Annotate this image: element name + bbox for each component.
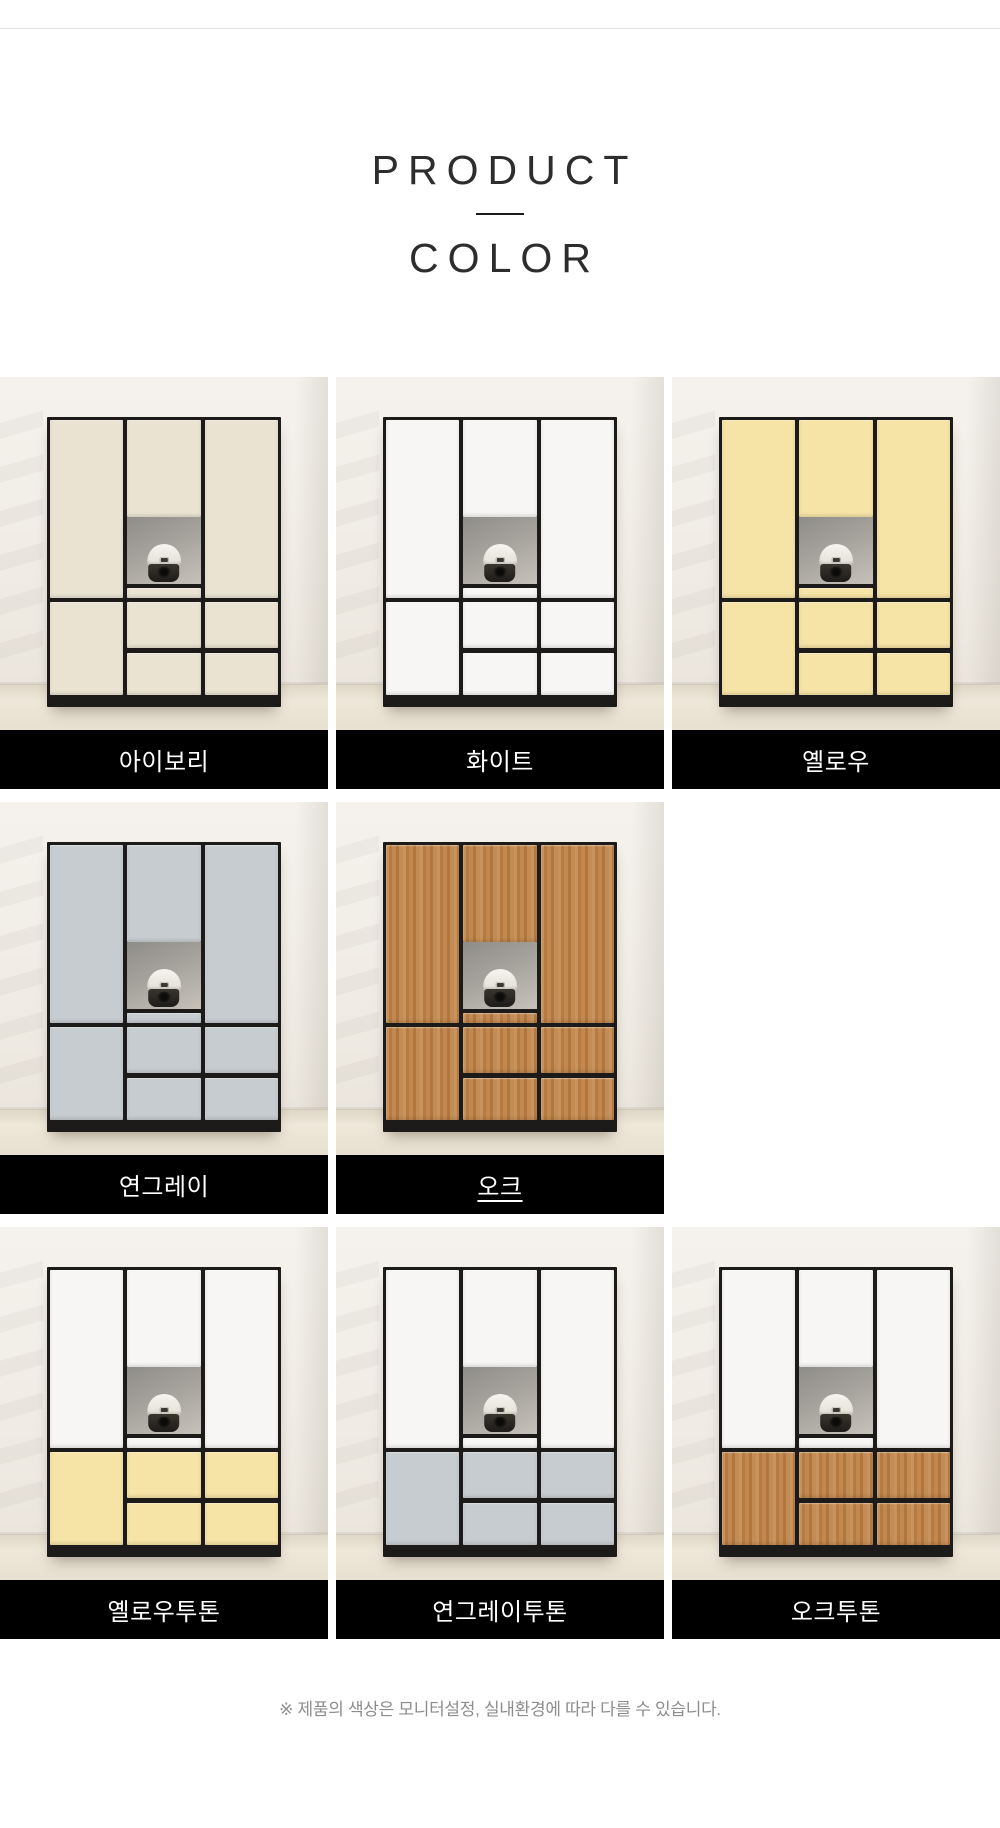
thin-drawer-panel (127, 1438, 200, 1448)
drawer-panel (205, 602, 278, 648)
product-photo (672, 377, 1000, 730)
wardrobe-illustration (383, 1267, 617, 1558)
drawer-panel (541, 1503, 614, 1545)
color-label: 오크투톤 (791, 1592, 881, 1627)
color-label: 연그레이 (119, 1167, 209, 1202)
wall-corner (967, 377, 1000, 688)
color-label-bar: 옐로우투톤 (0, 1580, 328, 1639)
door-panel (127, 1270, 200, 1367)
product-photo (0, 1227, 328, 1580)
color-swatch-oak-twotone: 오크투톤 (672, 1227, 1000, 1639)
rice-cooker-latch (160, 557, 169, 563)
rice-cooker-latch (496, 982, 505, 988)
door-panel (386, 602, 459, 695)
color-label: 오크 (477, 1167, 522, 1202)
product-photo (336, 1227, 664, 1580)
door-panel (877, 420, 950, 598)
rice-cooker-body (485, 989, 516, 1008)
wall-shadow (336, 836, 379, 1100)
rice-cooker (483, 969, 517, 1008)
rice-cooker (819, 1394, 853, 1433)
door-panel (205, 845, 278, 1023)
door-panel (50, 1270, 123, 1448)
rice-cooker-lid (483, 969, 517, 990)
wardrobe-illustration (719, 417, 953, 708)
door-panel (722, 420, 795, 598)
door-panel (463, 845, 536, 942)
color-label-bar: 아이보리 (0, 730, 328, 789)
product-photo (336, 802, 664, 1155)
wall-shadow (0, 1261, 43, 1525)
wall-shadow (0, 836, 43, 1100)
door-panel (50, 845, 123, 1023)
title-product: PRODUCT (0, 149, 1000, 192)
drawer-panel (205, 1452, 278, 1498)
open-niche (463, 517, 536, 584)
rice-cooker (147, 544, 181, 583)
door-panel (799, 420, 872, 517)
rice-cooker-body (821, 1414, 852, 1433)
door-panel (877, 1270, 950, 1448)
rice-cooker-latch (160, 1407, 169, 1413)
open-niche (463, 942, 536, 1009)
open-niche (463, 1367, 536, 1434)
door-panel (722, 1452, 795, 1545)
rice-cooker-window (157, 567, 171, 578)
rice-cooker-body (149, 564, 180, 583)
rice-cooker-latch (832, 557, 841, 563)
wardrobe-illustration (47, 1267, 281, 1558)
door-panel (205, 1270, 278, 1448)
thin-drawer-panel (127, 1013, 200, 1023)
rice-cooker-window (493, 567, 507, 578)
wardrobe-illustration (719, 1267, 953, 1558)
drawer-panel (799, 1503, 872, 1545)
door-panel (386, 845, 459, 1023)
drawer-panel (463, 1078, 536, 1120)
door-panel (463, 1270, 536, 1367)
drawer-panel (463, 1027, 536, 1073)
wall-corner (295, 377, 328, 688)
wall-shadow (336, 1261, 379, 1525)
drawer-panel (127, 653, 200, 695)
rice-cooker-lid (483, 1394, 517, 1415)
color-label-bar: 오크투톤 (672, 1580, 1000, 1639)
drawer-panel (799, 653, 872, 695)
color-label-bar: 옐로우 (672, 730, 1000, 789)
rice-cooker-latch (496, 557, 505, 563)
color-label: 아이보리 (119, 742, 209, 777)
door-panel (50, 1452, 123, 1545)
rice-cooker-window (829, 567, 843, 578)
title-dash (476, 213, 524, 215)
color-swatch-light-gray: 연그레이 (0, 802, 328, 1214)
door-panel (799, 1270, 872, 1367)
drawer-panel (463, 1503, 536, 1545)
open-niche (127, 1367, 200, 1434)
rice-cooker-lid (483, 544, 517, 565)
wall-corner (967, 1227, 1000, 1538)
rice-cooker-body (485, 564, 516, 583)
rice-cooker-lid (819, 1394, 853, 1415)
wardrobe-illustration (383, 842, 617, 1133)
color-disclaimer: ※ 제품의 색상은 모니터설정, 실내환경에 따라 다를 수 있습니다. (0, 1695, 1000, 1720)
rice-cooker-body (149, 989, 180, 1008)
rice-cooker-window (493, 992, 507, 1003)
open-niche (799, 517, 872, 584)
rice-cooker-body (821, 564, 852, 583)
rice-cooker-window (157, 1417, 171, 1428)
door-panel (50, 420, 123, 598)
drawer-panel (205, 1027, 278, 1073)
rice-cooker-window (829, 1417, 843, 1428)
drawer-panel (127, 1503, 200, 1545)
door-panel (50, 602, 123, 695)
wall-shadow (0, 411, 43, 675)
door-panel (127, 420, 200, 517)
thin-drawer-panel (463, 1013, 536, 1023)
door-panel (722, 1270, 795, 1448)
color-grid: 아이보리 (0, 377, 1000, 1639)
thin-drawer-panel (127, 588, 200, 598)
drawer-panel (127, 1027, 200, 1073)
color-swatch-oak: 오크 (336, 802, 664, 1214)
door-panel (722, 602, 795, 695)
rice-cooker (483, 1394, 517, 1433)
wardrobe-illustration (47, 842, 281, 1133)
door-panel (50, 1027, 123, 1120)
drawer-panel (541, 602, 614, 648)
rice-cooker-lid (147, 544, 181, 565)
drawer-panel (205, 1503, 278, 1545)
rice-cooker (147, 969, 181, 1008)
drawer-panel (127, 1078, 200, 1120)
rice-cooker-body (485, 1414, 516, 1433)
rice-cooker-lid (147, 1394, 181, 1415)
drawer-panel (463, 602, 536, 648)
color-swatch-yellow: 옐로우 (672, 377, 1000, 789)
drawer-panel (205, 1078, 278, 1120)
drawer-panel (877, 1503, 950, 1545)
drawer-panel (799, 602, 872, 648)
thin-drawer-panel (799, 1438, 872, 1448)
rice-cooker-latch (496, 1407, 505, 1413)
door-panel (463, 420, 536, 517)
drawer-panel (877, 653, 950, 695)
product-photo (0, 377, 328, 730)
thin-drawer-panel (463, 588, 536, 598)
drawer-panel (541, 1452, 614, 1498)
color-swatch-white: 화이트 (336, 377, 664, 789)
drawer-panel (877, 602, 950, 648)
rice-cooker-lid (147, 969, 181, 990)
wall-corner (631, 1227, 664, 1538)
rice-cooker-latch (160, 982, 169, 988)
door-panel (386, 1452, 459, 1545)
section-title: PRODUCT COLOR (0, 29, 1000, 280)
color-label: 연그레이투톤 (432, 1592, 567, 1627)
color-swatch-ivory: 아이보리 (0, 377, 328, 789)
drawer-panel (541, 1078, 614, 1120)
color-swatch-light-gray-twotone: 연그레이투톤 (336, 1227, 664, 1639)
open-niche (127, 942, 200, 1009)
door-panel (541, 1270, 614, 1448)
door-panel (386, 1027, 459, 1120)
rice-cooker (147, 1394, 181, 1433)
door-panel (541, 845, 614, 1023)
wall-shadow (672, 411, 715, 675)
drawer-panel (541, 653, 614, 695)
rice-cooker-lid (819, 544, 853, 565)
open-niche (799, 1367, 872, 1434)
thin-drawer-panel (463, 1438, 536, 1448)
color-label: 옐로우 (802, 742, 870, 777)
top-divider (0, 0, 1000, 29)
drawer-panel (541, 1027, 614, 1073)
rice-cooker-window (157, 992, 171, 1003)
wall-corner (631, 377, 664, 688)
color-label-bar: 연그레이 (0, 1155, 328, 1214)
wall-corner (295, 1227, 328, 1538)
door-panel (127, 845, 200, 942)
color-label-bar: 화이트 (336, 730, 664, 789)
rice-cooker (483, 544, 517, 583)
empty-grid-cell (672, 802, 1000, 1214)
drawer-panel (205, 653, 278, 695)
door-panel (386, 1270, 459, 1448)
drawer-panel (799, 1452, 872, 1498)
rice-cooker (819, 544, 853, 583)
rice-cooker-window (493, 1417, 507, 1428)
open-niche (127, 517, 200, 584)
drawer-panel (877, 1452, 950, 1498)
drawer-panel (127, 602, 200, 648)
drawer-panel (463, 653, 536, 695)
wall-shadow (672, 1261, 715, 1525)
wardrobe-illustration (383, 417, 617, 708)
product-photo (336, 377, 664, 730)
title-color: COLOR (0, 237, 1000, 280)
color-label-bar: 오크 (336, 1155, 664, 1214)
rice-cooker-latch (832, 1407, 841, 1413)
color-label-bar: 연그레이투톤 (336, 1580, 664, 1639)
color-label: 옐로우투톤 (108, 1592, 221, 1627)
drawer-panel (463, 1452, 536, 1498)
door-panel (386, 420, 459, 598)
rice-cooker-body (149, 1414, 180, 1433)
wardrobe-illustration (47, 417, 281, 708)
color-label: 화이트 (466, 742, 534, 777)
wall-shadow (336, 411, 379, 675)
product-photo (672, 1227, 1000, 1580)
drawer-panel (127, 1452, 200, 1498)
color-swatch-yellow-twotone: 옐로우투톤 (0, 1227, 328, 1639)
door-panel (205, 420, 278, 598)
thin-drawer-panel (799, 588, 872, 598)
wall-corner (631, 802, 664, 1113)
wall-corner (295, 802, 328, 1113)
door-panel (541, 420, 614, 598)
product-photo (0, 802, 328, 1155)
